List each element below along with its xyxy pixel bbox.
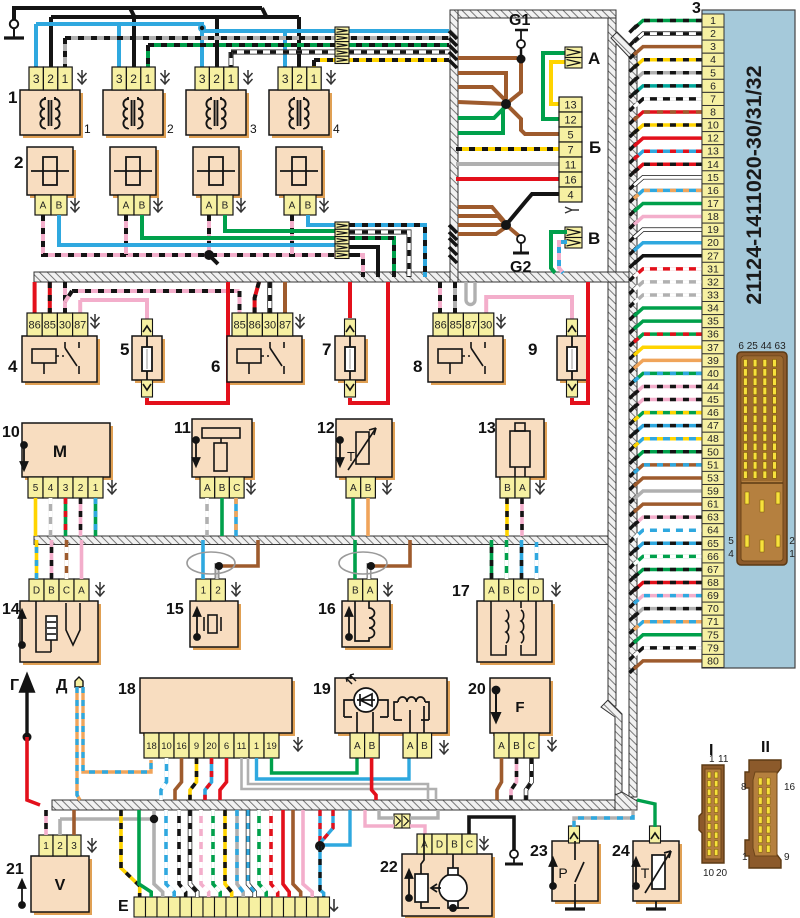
svg-text:G2: G2	[510, 259, 531, 276]
svg-text:9: 9	[194, 741, 199, 752]
svg-text:10: 10	[707, 120, 719, 132]
svg-text:3: 3	[199, 72, 206, 86]
svg-text:67: 67	[707, 564, 719, 576]
svg-text:1: 1	[789, 549, 795, 560]
svg-text:46: 46	[707, 407, 719, 419]
svg-text:23: 23	[530, 843, 548, 860]
svg-text:1: 1	[201, 586, 207, 597]
svg-text:4: 4	[48, 483, 54, 494]
svg-text:C: C	[466, 840, 473, 851]
svg-text:10: 10	[703, 868, 715, 879]
svg-text:1: 1	[254, 741, 259, 752]
svg-text:6: 6	[710, 80, 716, 92]
svg-text:B: B	[513, 741, 520, 752]
svg-text:1: 1	[228, 72, 235, 86]
svg-text:9: 9	[528, 340, 537, 359]
svg-text:39: 39	[707, 355, 719, 367]
svg-text:4: 4	[710, 54, 716, 66]
svg-text:3: 3	[282, 72, 289, 86]
svg-text:36: 36	[707, 329, 719, 341]
svg-text:C: C	[233, 483, 240, 494]
svg-text:А: А	[588, 49, 600, 68]
svg-text:40: 40	[707, 368, 719, 380]
svg-text:79: 79	[707, 642, 719, 654]
svg-text:19: 19	[313, 681, 331, 698]
svg-text:15: 15	[707, 172, 719, 184]
svg-text:5: 5	[728, 536, 734, 547]
svg-text:A: A	[289, 201, 296, 212]
svg-text:13: 13	[564, 99, 576, 111]
svg-text:A: A	[123, 201, 130, 212]
svg-text:A: A	[206, 201, 213, 212]
svg-text:65: 65	[707, 538, 719, 550]
svg-text:50: 50	[707, 446, 719, 458]
svg-text:11: 11	[718, 754, 729, 765]
svg-text:В: В	[588, 229, 600, 248]
svg-text:10: 10	[2, 424, 20, 441]
svg-text:53: 53	[707, 472, 719, 484]
svg-text:D: D	[532, 586, 539, 597]
svg-text:22: 22	[380, 859, 398, 876]
svg-text:2: 2	[296, 72, 303, 86]
svg-text:T: T	[641, 865, 650, 881]
svg-text:A: A	[407, 741, 414, 752]
svg-text:13: 13	[707, 146, 719, 158]
svg-text:B: B	[421, 741, 428, 752]
svg-text:V: V	[55, 877, 66, 894]
svg-text:45: 45	[707, 394, 719, 406]
svg-text:64: 64	[707, 525, 719, 537]
svg-text:87: 87	[279, 319, 291, 331]
svg-text:10: 10	[161, 741, 172, 752]
svg-text:2: 2	[57, 841, 63, 852]
svg-text:1: 1	[709, 754, 715, 765]
svg-text:2: 2	[215, 586, 221, 597]
svg-text:G1: G1	[509, 12, 530, 29]
svg-text:18: 18	[146, 741, 157, 752]
svg-text:C: C	[63, 586, 70, 597]
svg-text:B: B	[504, 483, 511, 494]
svg-text:59: 59	[707, 486, 719, 498]
svg-text:6: 6	[211, 357, 220, 376]
svg-text:16: 16	[707, 185, 719, 197]
svg-text:A: A	[498, 741, 505, 752]
svg-text:1: 1	[145, 72, 152, 86]
svg-text:B: B	[451, 840, 458, 851]
svg-text:8: 8	[413, 357, 422, 376]
svg-text:20: 20	[206, 741, 217, 752]
svg-text:II: II	[761, 739, 770, 756]
svg-text:1: 1	[311, 72, 318, 86]
svg-text:85: 85	[233, 319, 245, 331]
svg-text:Б: Б	[589, 138, 601, 157]
svg-text:13: 13	[478, 420, 496, 437]
svg-text:1: 1	[62, 72, 69, 86]
svg-text:7: 7	[710, 93, 716, 105]
svg-text:D: D	[436, 840, 443, 851]
svg-text:11: 11	[174, 420, 191, 437]
svg-text:14: 14	[2, 601, 20, 618]
svg-text:20: 20	[716, 868, 728, 879]
svg-text:1: 1	[43, 841, 49, 852]
svg-text:A: A	[488, 586, 495, 597]
svg-text:19: 19	[266, 741, 277, 752]
svg-text:B: B	[139, 201, 146, 212]
svg-text:85: 85	[44, 319, 56, 331]
svg-text:1: 1	[710, 15, 716, 27]
svg-text:4: 4	[333, 122, 340, 136]
svg-text:2: 2	[710, 28, 716, 40]
svg-text:6: 6	[224, 741, 229, 752]
svg-text:B: B	[305, 201, 312, 212]
svg-text:35: 35	[707, 316, 719, 328]
svg-text:70: 70	[707, 603, 719, 615]
svg-text:3: 3	[250, 122, 257, 136]
svg-text:3: 3	[71, 841, 77, 852]
svg-text:A: A	[204, 483, 211, 494]
svg-text:24: 24	[612, 843, 630, 860]
svg-text:1: 1	[8, 88, 17, 107]
svg-text:B: B	[56, 201, 63, 212]
svg-text:A: A	[354, 741, 361, 752]
svg-text:16: 16	[176, 741, 187, 752]
svg-text:17: 17	[452, 583, 470, 600]
svg-text:3: 3	[710, 41, 716, 53]
svg-text:1: 1	[84, 122, 91, 136]
svg-text:86: 86	[434, 319, 446, 331]
svg-text:47: 47	[707, 420, 719, 432]
svg-text:33: 33	[707, 290, 719, 302]
svg-text:A: A	[78, 586, 85, 597]
svg-text:2: 2	[130, 72, 137, 86]
svg-text:32: 32	[707, 276, 719, 288]
svg-text:1: 1	[742, 852, 748, 863]
svg-text:8: 8	[710, 107, 716, 119]
svg-text:4: 4	[728, 549, 734, 560]
svg-text:34: 34	[707, 303, 719, 315]
svg-text:2: 2	[789, 536, 795, 547]
svg-text:14: 14	[707, 159, 719, 171]
svg-text:B: B	[222, 201, 229, 212]
svg-text:B: B	[365, 483, 372, 494]
svg-text:2: 2	[213, 72, 220, 86]
svg-text:M: M	[53, 442, 67, 461]
svg-text:37: 37	[707, 342, 719, 354]
svg-text:21124-1411020-30/31/32: 21124-1411020-30/31/32	[742, 65, 766, 304]
svg-text:A: A	[40, 201, 47, 212]
svg-text:86: 86	[249, 319, 261, 331]
svg-text:5: 5	[33, 483, 39, 494]
svg-text:11: 11	[565, 159, 576, 171]
svg-text:30: 30	[59, 319, 71, 331]
svg-text:A: A	[519, 483, 526, 494]
svg-text:85: 85	[450, 319, 462, 331]
svg-text:71: 71	[707, 616, 719, 628]
svg-text:16: 16	[784, 782, 796, 793]
svg-text:27: 27	[707, 250, 719, 262]
svg-text:F: F	[515, 699, 524, 716]
svg-text:B: B	[352, 586, 359, 597]
svg-text:T: T	[347, 449, 355, 464]
svg-text:3: 3	[116, 72, 123, 86]
svg-text:87: 87	[465, 319, 477, 331]
svg-text:P: P	[558, 865, 567, 881]
svg-text:18: 18	[118, 681, 136, 698]
svg-text:2: 2	[47, 72, 54, 86]
svg-text:5: 5	[567, 129, 573, 141]
svg-text:11: 11	[237, 741, 247, 752]
svg-text:A: A	[350, 483, 357, 494]
svg-text:3: 3	[692, 0, 701, 17]
svg-text:15: 15	[166, 601, 184, 618]
svg-text:30: 30	[264, 319, 276, 331]
svg-text:B: B	[48, 586, 55, 597]
svg-text:12: 12	[564, 114, 576, 126]
svg-text:16: 16	[564, 174, 576, 186]
svg-text:B: B	[219, 483, 226, 494]
svg-text:16: 16	[318, 601, 336, 618]
svg-text:C: C	[528, 741, 535, 752]
svg-text:86: 86	[28, 319, 40, 331]
svg-text:63: 63	[707, 512, 719, 524]
svg-text:3: 3	[33, 72, 40, 86]
svg-text:B: B	[369, 741, 376, 752]
svg-text:E: E	[118, 898, 129, 915]
svg-text:3: 3	[63, 483, 69, 494]
svg-text:6 25 44 63: 6 25 44 63	[738, 341, 786, 352]
svg-text:18: 18	[707, 211, 719, 223]
svg-text:4: 4	[567, 189, 573, 201]
svg-text:20: 20	[707, 237, 719, 249]
svg-text:1: 1	[93, 483, 99, 494]
svg-text:75: 75	[707, 629, 719, 641]
svg-text:66: 66	[707, 551, 719, 563]
svg-text:C: C	[517, 586, 524, 597]
svg-text:12: 12	[317, 420, 335, 437]
svg-text:44: 44	[707, 381, 719, 393]
svg-text:61: 61	[707, 499, 719, 511]
svg-text:B: B	[503, 586, 510, 597]
svg-text:80: 80	[707, 655, 719, 667]
svg-text:68: 68	[707, 577, 719, 589]
svg-text:2: 2	[78, 483, 84, 494]
svg-text:69: 69	[707, 590, 719, 602]
svg-text:4: 4	[8, 357, 18, 376]
svg-text:20: 20	[468, 681, 486, 698]
svg-text:A: A	[367, 586, 374, 597]
svg-text:31: 31	[707, 263, 719, 275]
svg-text:17: 17	[707, 198, 719, 210]
svg-text:2: 2	[14, 153, 23, 172]
svg-text:48: 48	[707, 433, 719, 445]
svg-text:Г: Г	[10, 677, 19, 694]
svg-text:9: 9	[784, 852, 790, 863]
svg-text:D: D	[33, 586, 40, 597]
svg-text:2: 2	[167, 122, 174, 136]
svg-text:19: 19	[707, 224, 719, 236]
svg-text:51: 51	[707, 459, 719, 471]
svg-text:7: 7	[567, 144, 573, 156]
svg-text:87: 87	[74, 319, 86, 331]
svg-text:21: 21	[6, 861, 24, 878]
svg-text:12: 12	[707, 133, 719, 145]
svg-text:30: 30	[480, 319, 492, 331]
svg-text:7: 7	[322, 340, 331, 359]
svg-text:Д: Д	[56, 677, 68, 694]
svg-text:5: 5	[120, 340, 129, 359]
svg-text:5: 5	[710, 67, 716, 79]
svg-text:8: 8	[741, 782, 747, 793]
